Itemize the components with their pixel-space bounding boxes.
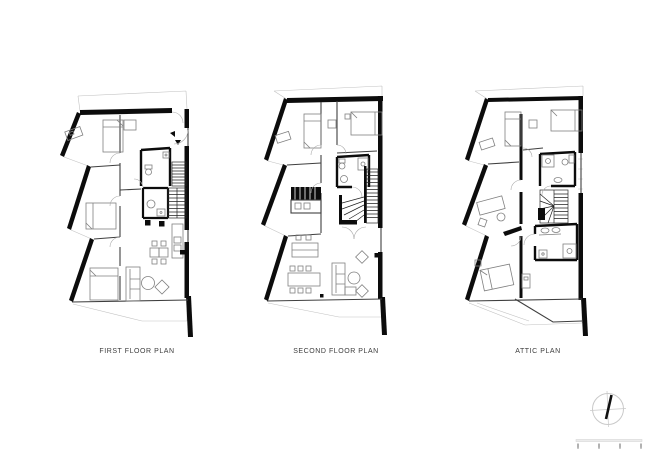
beds [275,112,382,148]
living-furniture [126,267,169,301]
exterior-walls [261,96,387,335]
door-swings [110,112,188,247]
attic-plan-drawing [455,84,595,350]
balcony-door [375,253,380,258]
upper-bathroom [540,152,575,186]
bathroom-core [141,148,170,227]
lower-bathroom [535,224,577,260]
second-floor-plan-label: SECOND FLOOR PLAN [261,348,411,355]
exterior-walls [60,108,193,337]
second-floor-plan-drawing [254,85,394,338]
stairs [538,190,568,223]
attic-plan-label: ATTIC PLAN [463,348,613,355]
exterior-walls [462,96,588,336]
first-floor-plan-label: FIRST FLOOR PLAN [62,348,212,355]
wardrobe [291,187,321,213]
dining-set [288,266,320,293]
dining-set [150,241,168,264]
living-furniture [320,251,368,298]
stairs [339,166,378,225]
beds [475,110,582,291]
study-furniture [477,196,505,227]
kitchen-island [292,235,318,257]
interior-partitions [488,148,543,164]
roof-outline [466,86,583,325]
central-wall [503,114,523,298]
kitchen [172,224,185,258]
drawing-sheet: FIRST FLOOR PLAN [0,0,649,460]
scale-bar [573,436,645,450]
first-floor-plan-drawing [60,90,200,340]
north-arrow-icon [586,388,630,432]
